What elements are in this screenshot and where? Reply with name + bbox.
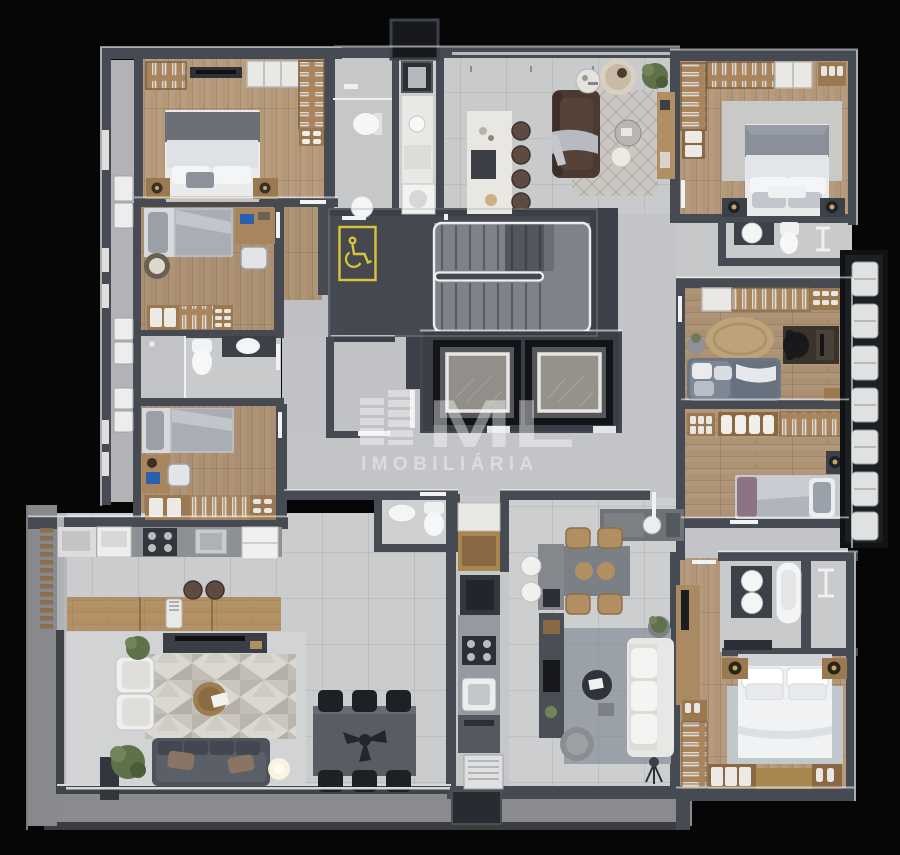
svg-text:ML: ML <box>427 386 575 462</box>
svg-text:IMOBILIÁRIA: IMOBILIÁRIA <box>361 453 539 475</box>
